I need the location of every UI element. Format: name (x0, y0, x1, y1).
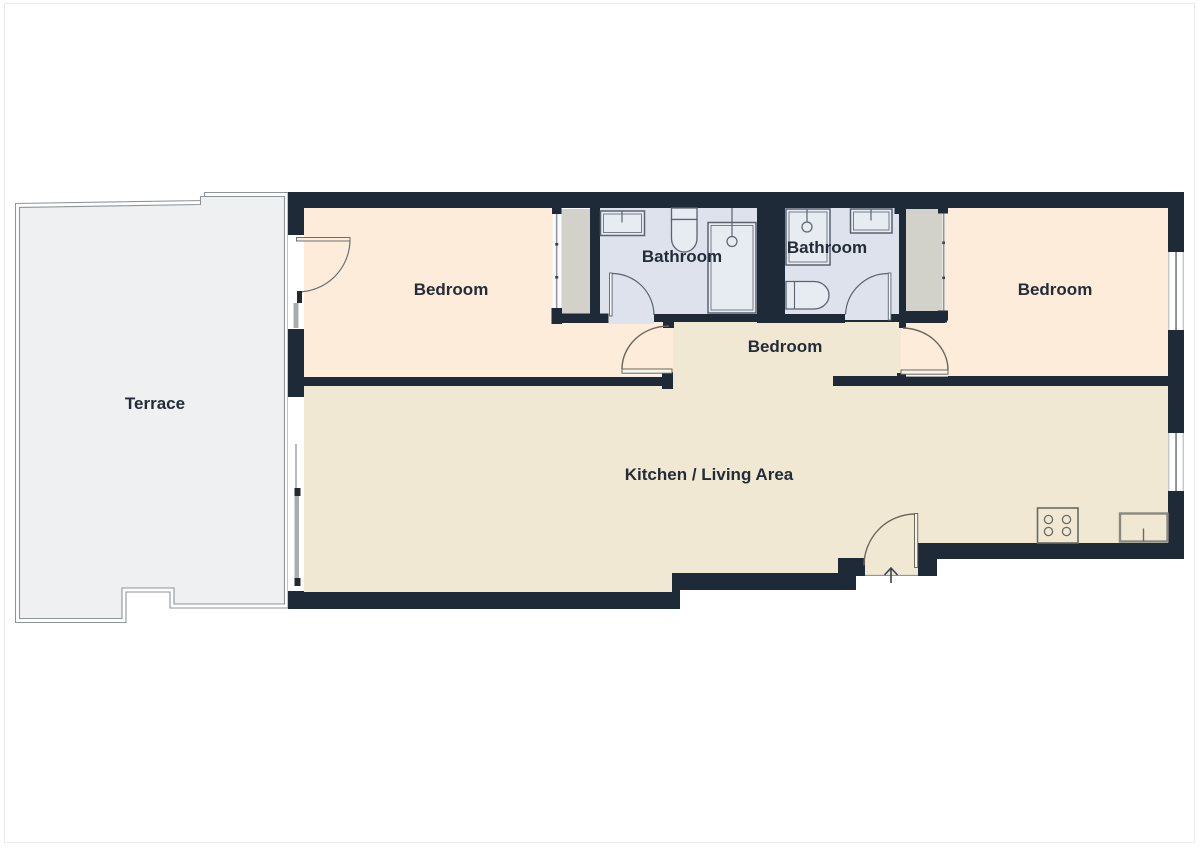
svg-text:Bedroom: Bedroom (748, 337, 823, 356)
svg-text:Bedroom: Bedroom (414, 280, 489, 299)
svg-text:Bathroom: Bathroom (787, 238, 867, 257)
svg-text:Terrace: Terrace (125, 394, 185, 413)
svg-text:Bathroom: Bathroom (642, 247, 722, 266)
svg-text:Kitchen / Living Area: Kitchen / Living Area (625, 465, 794, 484)
svg-text:Bedroom: Bedroom (1018, 280, 1093, 299)
